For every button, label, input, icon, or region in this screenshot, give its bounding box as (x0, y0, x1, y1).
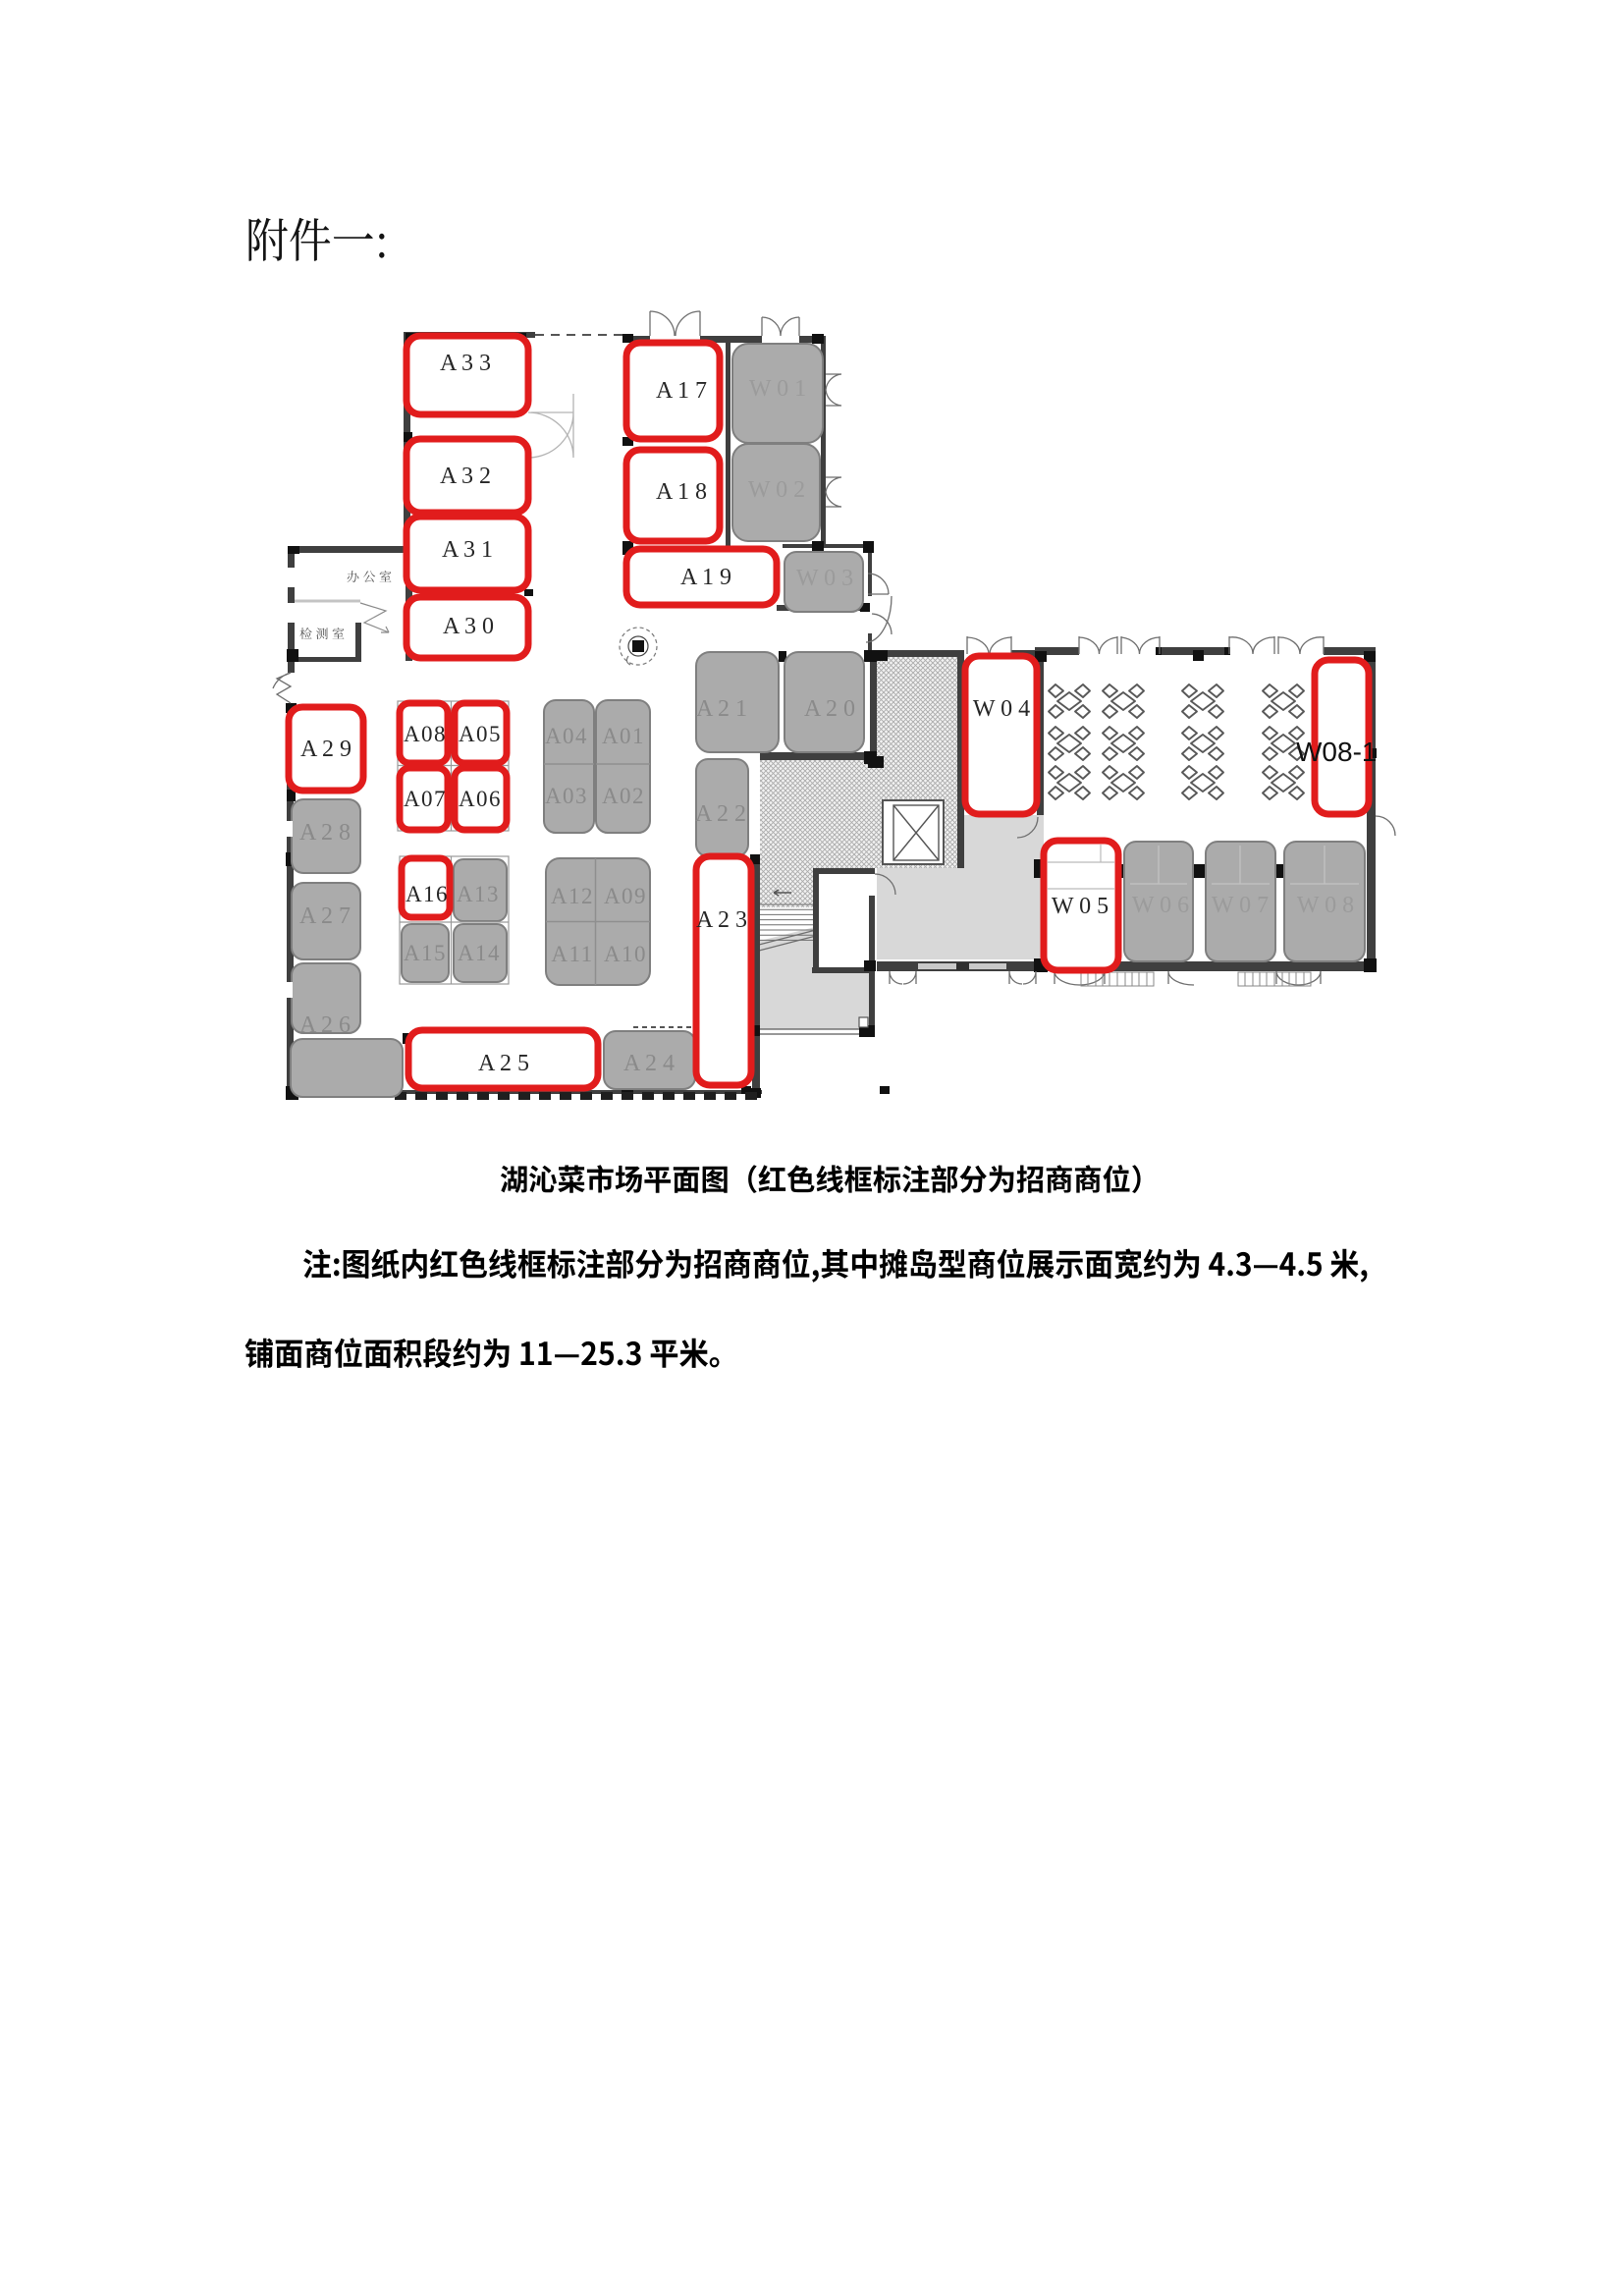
svg-text:A04: A04 (545, 724, 588, 748)
svg-text:A 2 1: A 2 1 (696, 696, 747, 722)
svg-text:A03: A03 (545, 784, 588, 808)
svg-text:A16: A16 (406, 882, 449, 906)
svg-text:A 3 0: A 3 0 (443, 614, 494, 639)
svg-text:A 2 5: A 2 5 (478, 1051, 529, 1076)
svg-text:A 2 9: A 2 9 (300, 737, 352, 762)
svg-text:A 2 4: A 2 4 (623, 1051, 675, 1076)
svg-text:A11: A11 (551, 942, 593, 966)
svg-text:A05: A05 (459, 722, 502, 746)
svg-text:W 0 3: W 0 3 (796, 566, 853, 591)
svg-text:W 0 6: W 0 6 (1132, 893, 1189, 918)
svg-text:A 2 0: A 2 0 (804, 696, 855, 722)
svg-text:A06: A06 (459, 787, 502, 811)
svg-text:A 2 6: A 2 6 (299, 1012, 351, 1038)
svg-text:A 1 9: A 1 9 (680, 565, 731, 590)
svg-text:A 1 8: A 1 8 (656, 479, 707, 505)
svg-text:A 2 2: A 2 2 (695, 801, 746, 827)
svg-text:W 0 1: W 0 1 (749, 376, 806, 402)
svg-text:A 2 3: A 2 3 (696, 907, 747, 933)
svg-text:W 0 5: W 0 5 (1052, 894, 1109, 919)
svg-text:W 0 7: W 0 7 (1212, 893, 1269, 918)
svg-text:A 3 3: A 3 3 (440, 351, 491, 376)
svg-text:A02: A02 (602, 784, 645, 808)
svg-text:W 0 2: W 0 2 (748, 477, 805, 503)
svg-text:A10: A10 (604, 942, 647, 966)
svg-text:A01: A01 (602, 724, 645, 748)
svg-text:A 2 7: A 2 7 (299, 903, 351, 929)
svg-text:A08: A08 (404, 722, 447, 746)
svg-text:A14: A14 (458, 941, 501, 965)
svg-text:A 1 7: A 1 7 (656, 378, 707, 404)
svg-text:A15: A15 (404, 941, 447, 965)
svg-text:W08-1: W08-1 (1296, 737, 1377, 767)
svg-text:A07: A07 (404, 787, 447, 811)
svg-text:A12: A12 (551, 884, 594, 908)
svg-text:A 3 1: A 3 1 (442, 537, 493, 563)
svg-text:A 2 8: A 2 8 (299, 820, 351, 846)
svg-text:W 0 4: W 0 4 (973, 696, 1030, 722)
svg-text:W 0 8: W 0 8 (1297, 893, 1354, 918)
svg-text:A13: A13 (457, 882, 500, 906)
svg-text:A 3 2: A 3 2 (440, 464, 491, 489)
svg-text:A09: A09 (604, 884, 647, 908)
